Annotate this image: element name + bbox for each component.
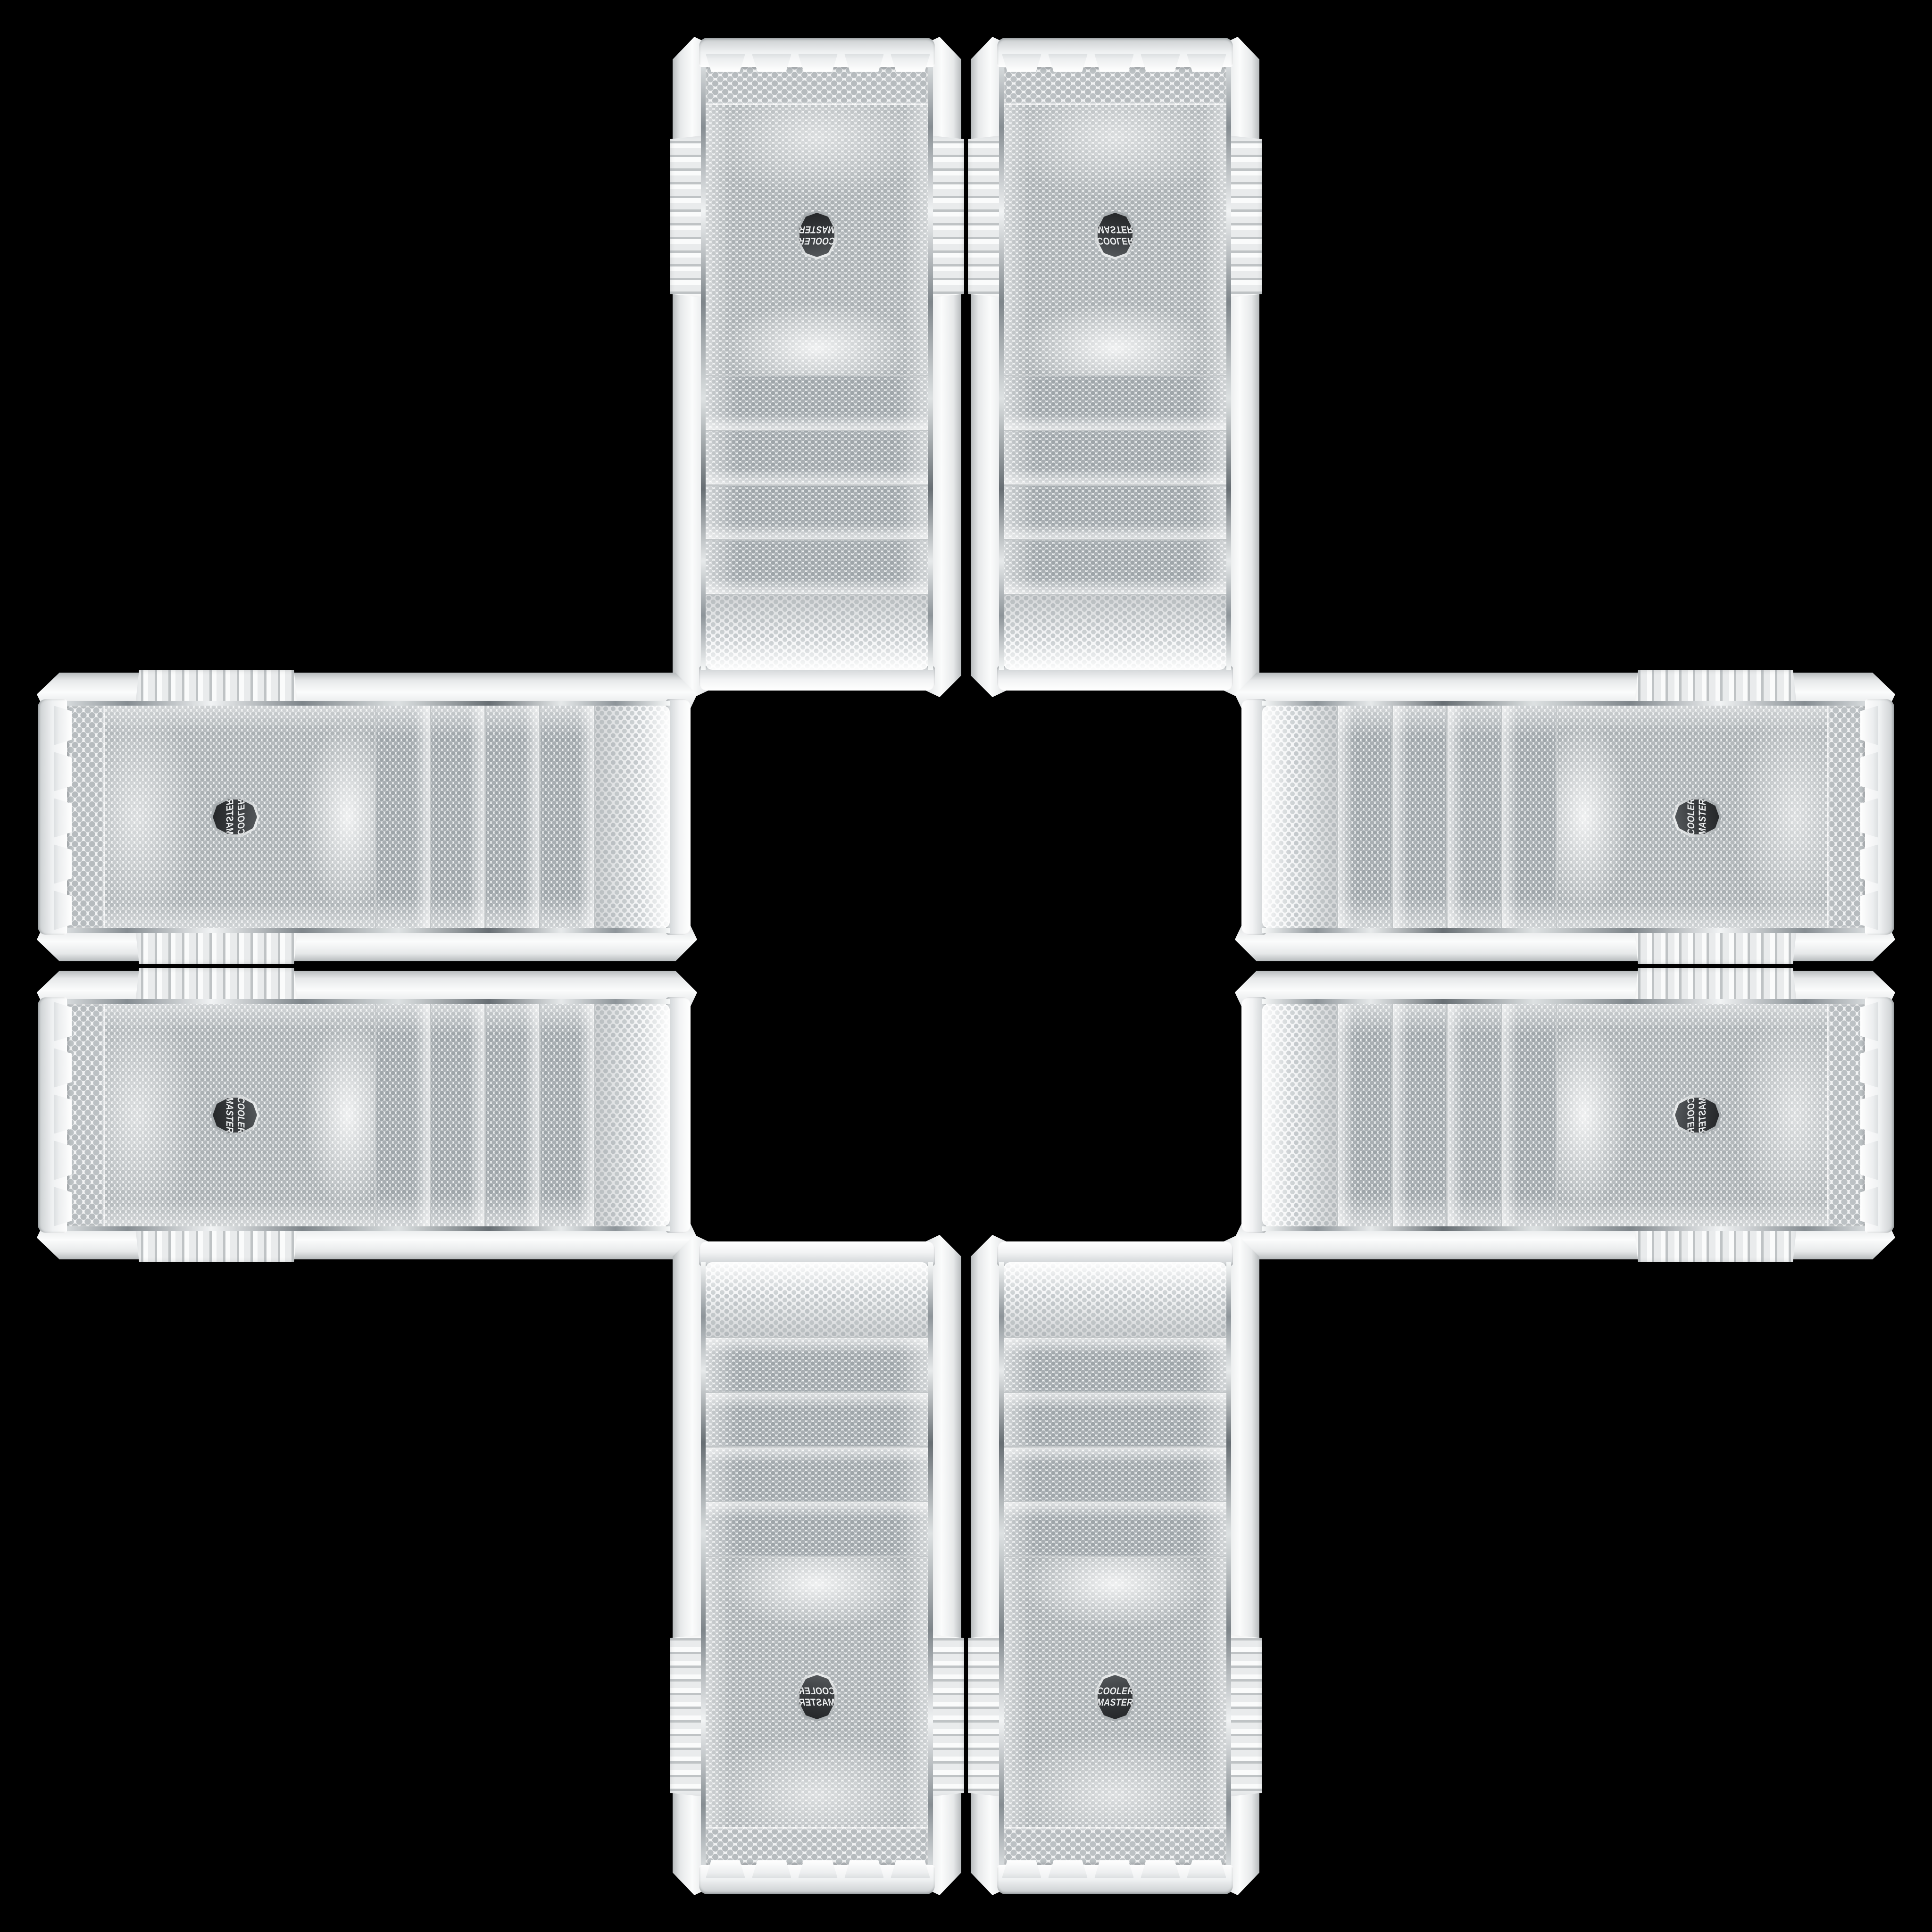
bottom-cap [1865, 699, 1894, 935]
bottom-cap [38, 997, 67, 1233]
chrome-trim-right [1262, 701, 1865, 706]
drive-bay-cover [1004, 376, 1226, 431]
badge-text-line2: MASTER [1698, 1097, 1708, 1133]
cooler-master-badge: COOLER MASTER [1673, 797, 1722, 837]
mesh-coarse-band [67, 1004, 105, 1226]
cap-tab [844, 1860, 884, 1878]
chrome-trim-left [928, 67, 933, 670]
mesh-coarse-band [1004, 1827, 1226, 1865]
badge-text-line2: MASTER [1097, 224, 1133, 234]
mesh-coarse-band [1827, 1004, 1865, 1226]
chrome-trim-right [67, 1226, 670, 1231]
case-panel-left-top: COOLER MASTER [37, 673, 697, 961]
case-panel-bottom-left: COOLER MASTER [673, 1235, 961, 1895]
chrome-trim-left [999, 67, 1004, 670]
drive-bay-cover [706, 486, 928, 541]
cap-tab [1094, 1860, 1134, 1878]
badge-text-line1: COOLER [799, 1686, 836, 1697]
cooler-master-badge: COOLER MASTER [1095, 1673, 1135, 1722]
drive-bay-cover [541, 1004, 595, 1226]
drive-bay-cover [376, 1004, 431, 1226]
drive-bay-cover [486, 706, 541, 928]
badge-text-line1: COOLER [1686, 799, 1697, 836]
chrome-trim-right [701, 1262, 706, 1865]
mesh-coarse-band [706, 67, 928, 105]
chrome-trim-right [67, 701, 670, 706]
drive-bay-cover [376, 706, 431, 928]
badge-face: COOLER MASTER [213, 799, 257, 834]
badge-text-line1: COOLER [1686, 1097, 1697, 1134]
cap-tab [54, 752, 72, 791]
cap-tab [54, 706, 72, 745]
drive-bay-cover [431, 1004, 486, 1226]
chrome-trim-left [928, 1262, 933, 1865]
cap-tab [54, 798, 72, 838]
cap-tab [1860, 1187, 1878, 1226]
badge-text-line2: MASTER [1698, 799, 1708, 835]
cap-tab [798, 54, 838, 72]
chrome-trim-right [1226, 1262, 1231, 1865]
drive-bay-cover [1004, 1446, 1226, 1501]
case-panel-right-bottom: COOLER MASTER [1235, 971, 1895, 1259]
cap-tab [1860, 752, 1878, 791]
cap-tab [1860, 891, 1878, 930]
cap-tab [54, 1094, 72, 1134]
badge-text-line2: MASTER [799, 1698, 835, 1708]
case-panel-top-left: COOLER MASTER [673, 37, 961, 697]
cap-tab [1860, 706, 1878, 745]
case-panel-top-right: COOLER MASTER [971, 37, 1259, 697]
drive-bay-cover [706, 541, 928, 595]
drive-bay-cover [1337, 706, 1391, 928]
badge-text-line2: MASTER [224, 1097, 234, 1133]
mesh-dome-band [1262, 706, 1337, 928]
cap-tab [752, 1860, 791, 1878]
bottom-cap [997, 1865, 1233, 1894]
cap-tab [54, 1002, 72, 1041]
drive-bay-cover [1004, 1337, 1226, 1391]
cap-tab [1002, 54, 1041, 72]
mesh-dome-band [595, 706, 670, 928]
badge-text-line2: MASTER [799, 224, 835, 234]
cooler-master-badge: COOLER MASTER [797, 210, 837, 259]
mesh-dome-band [1004, 595, 1226, 670]
mesh-dome-band [706, 1262, 928, 1337]
drive-bay-cover [1004, 486, 1226, 541]
scene: COOLER MASTER COOLER MASTER [0, 0, 1932, 1932]
cap-tab [1860, 798, 1878, 838]
drive-bay-cover [706, 431, 928, 486]
cap-tab [1187, 1860, 1226, 1878]
mesh-dome-band [595, 1004, 670, 1226]
cooler-master-badge: COOLER MASTER [210, 797, 259, 837]
badge-text-line1: COOLER [235, 799, 246, 836]
chrome-trim-right [1226, 67, 1231, 670]
cap-tab [1002, 1860, 1041, 1878]
mesh-coarse-band [706, 1827, 928, 1865]
drive-bay-cover [706, 1391, 928, 1446]
badge-face: COOLER MASTER [1098, 213, 1133, 257]
cap-tab [1048, 54, 1088, 72]
cap-tab [1860, 1002, 1878, 1041]
cooler-master-badge: COOLER MASTER [1673, 1095, 1722, 1135]
badge-face: COOLER MASTER [799, 1675, 834, 1719]
bottom-cap [997, 38, 1233, 67]
drive-bay-cover [1337, 1004, 1391, 1226]
case-panel-right-top: COOLER MASTER [1235, 673, 1895, 961]
badge-face: COOLER MASTER [1675, 799, 1719, 834]
cap-tab [1860, 1094, 1878, 1134]
cooler-master-badge: COOLER MASTER [1095, 210, 1135, 259]
cap-tab [752, 54, 791, 72]
cap-tab [1048, 1860, 1088, 1878]
badge-face: COOLER MASTER [1675, 1098, 1719, 1133]
badge-face: COOLER MASTER [799, 213, 834, 257]
badge-text-line1: COOLER [1097, 235, 1134, 246]
drive-bay-cover [706, 1501, 928, 1556]
chrome-trim-left [67, 999, 670, 1004]
drive-bay-cover [706, 1337, 928, 1391]
bottom-cap [699, 1865, 935, 1894]
chrome-trim-right [1262, 1226, 1865, 1231]
chrome-trim-left [999, 1262, 1004, 1865]
drive-bay-cover [541, 706, 595, 928]
badge-face: COOLER MASTER [213, 1098, 257, 1133]
cap-tab [798, 1860, 838, 1878]
mesh-coarse-band [1827, 706, 1865, 928]
drive-bay-cover [1004, 541, 1226, 595]
cooler-master-badge: COOLER MASTER [210, 1095, 259, 1135]
cap-tab [706, 1860, 745, 1878]
drive-bay-cover [1446, 706, 1501, 928]
drive-bay-cover [706, 1446, 928, 1501]
badge-text-line2: MASTER [224, 799, 234, 835]
cap-tab [1141, 54, 1180, 72]
badge-text-line1: COOLER [235, 1097, 246, 1134]
drive-bay-cover [1004, 1391, 1226, 1446]
drive-bay-cover [1004, 1501, 1226, 1556]
badge-text-line1: COOLER [799, 235, 836, 246]
drive-bay-cover [1446, 1004, 1501, 1226]
cap-tab [891, 54, 930, 72]
drive-bay-cover [1501, 706, 1556, 928]
mesh-dome-band [706, 595, 928, 670]
cap-tab [54, 844, 72, 884]
cap-tab [54, 1141, 72, 1180]
cap-tab [54, 891, 72, 930]
cap-tab [1141, 1860, 1180, 1878]
mesh-dome-band [1004, 1262, 1226, 1337]
case-panel-left-bottom: COOLER MASTER [37, 971, 697, 1259]
cap-tab [1094, 54, 1134, 72]
cooler-master-badge: COOLER MASTER [797, 1673, 837, 1722]
cap-tab [891, 1860, 930, 1878]
cap-tab [1187, 54, 1226, 72]
chrome-trim-left [1262, 999, 1865, 1004]
mesh-coarse-band [67, 706, 105, 928]
drive-bay-cover [486, 1004, 541, 1226]
badge-face: COOLER MASTER [1098, 1675, 1133, 1719]
drive-bay-cover [1501, 1004, 1556, 1226]
cap-tab [54, 1048, 72, 1088]
cap-tab [844, 54, 884, 72]
badge-text-line1: COOLER [1097, 1686, 1134, 1697]
bottom-cap [38, 699, 67, 935]
badge-text-line2: MASTER [1097, 1698, 1133, 1708]
cap-tab [1860, 844, 1878, 884]
cap-tab [54, 1187, 72, 1226]
cap-tab [706, 54, 745, 72]
drive-bay-cover [1391, 1004, 1446, 1226]
chrome-trim-left [1262, 928, 1865, 933]
drive-bay-cover [1391, 706, 1446, 928]
mesh-coarse-band [1004, 67, 1226, 105]
cap-tab [1860, 1141, 1878, 1180]
mesh-dome-band [1262, 1004, 1337, 1226]
chrome-trim-left [67, 928, 670, 933]
case-panel-bottom-right: COOLER MASTER [971, 1235, 1259, 1895]
drive-bay-cover [431, 706, 486, 928]
bottom-cap [699, 38, 935, 67]
drive-bay-cover [1004, 431, 1226, 486]
bottom-cap [1865, 997, 1894, 1233]
cap-tab [1860, 1048, 1878, 1088]
drive-bay-cover [706, 376, 928, 431]
chrome-trim-right [701, 67, 706, 670]
